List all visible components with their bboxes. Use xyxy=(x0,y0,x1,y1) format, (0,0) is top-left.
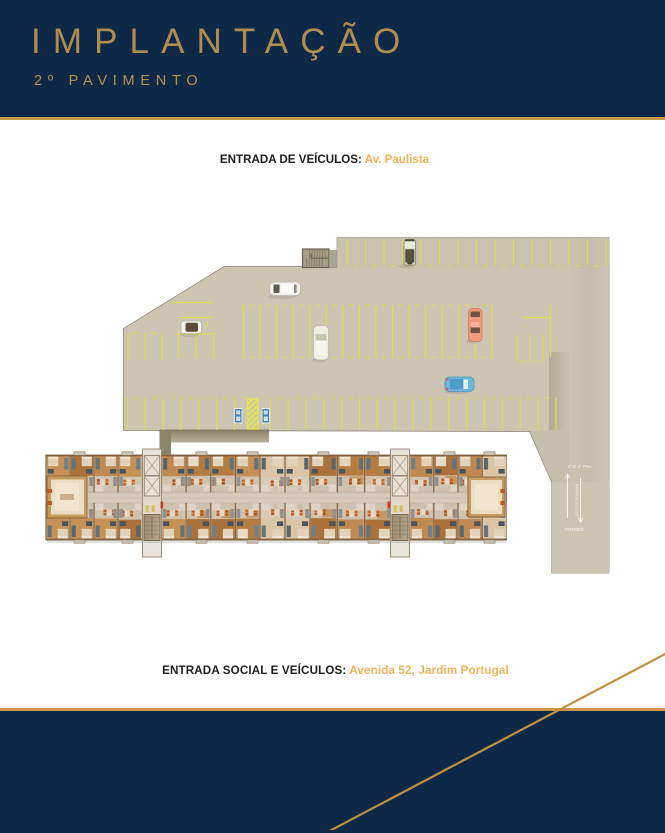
svg-text:1º E 2º PAV.: 1º E 2º PAV. xyxy=(568,464,593,469)
svg-text:TÉRREO: TÉRREO xyxy=(564,526,584,532)
svg-text:RAMPA DE ACESSO: RAMPA DE ACESSO xyxy=(575,484,579,517)
